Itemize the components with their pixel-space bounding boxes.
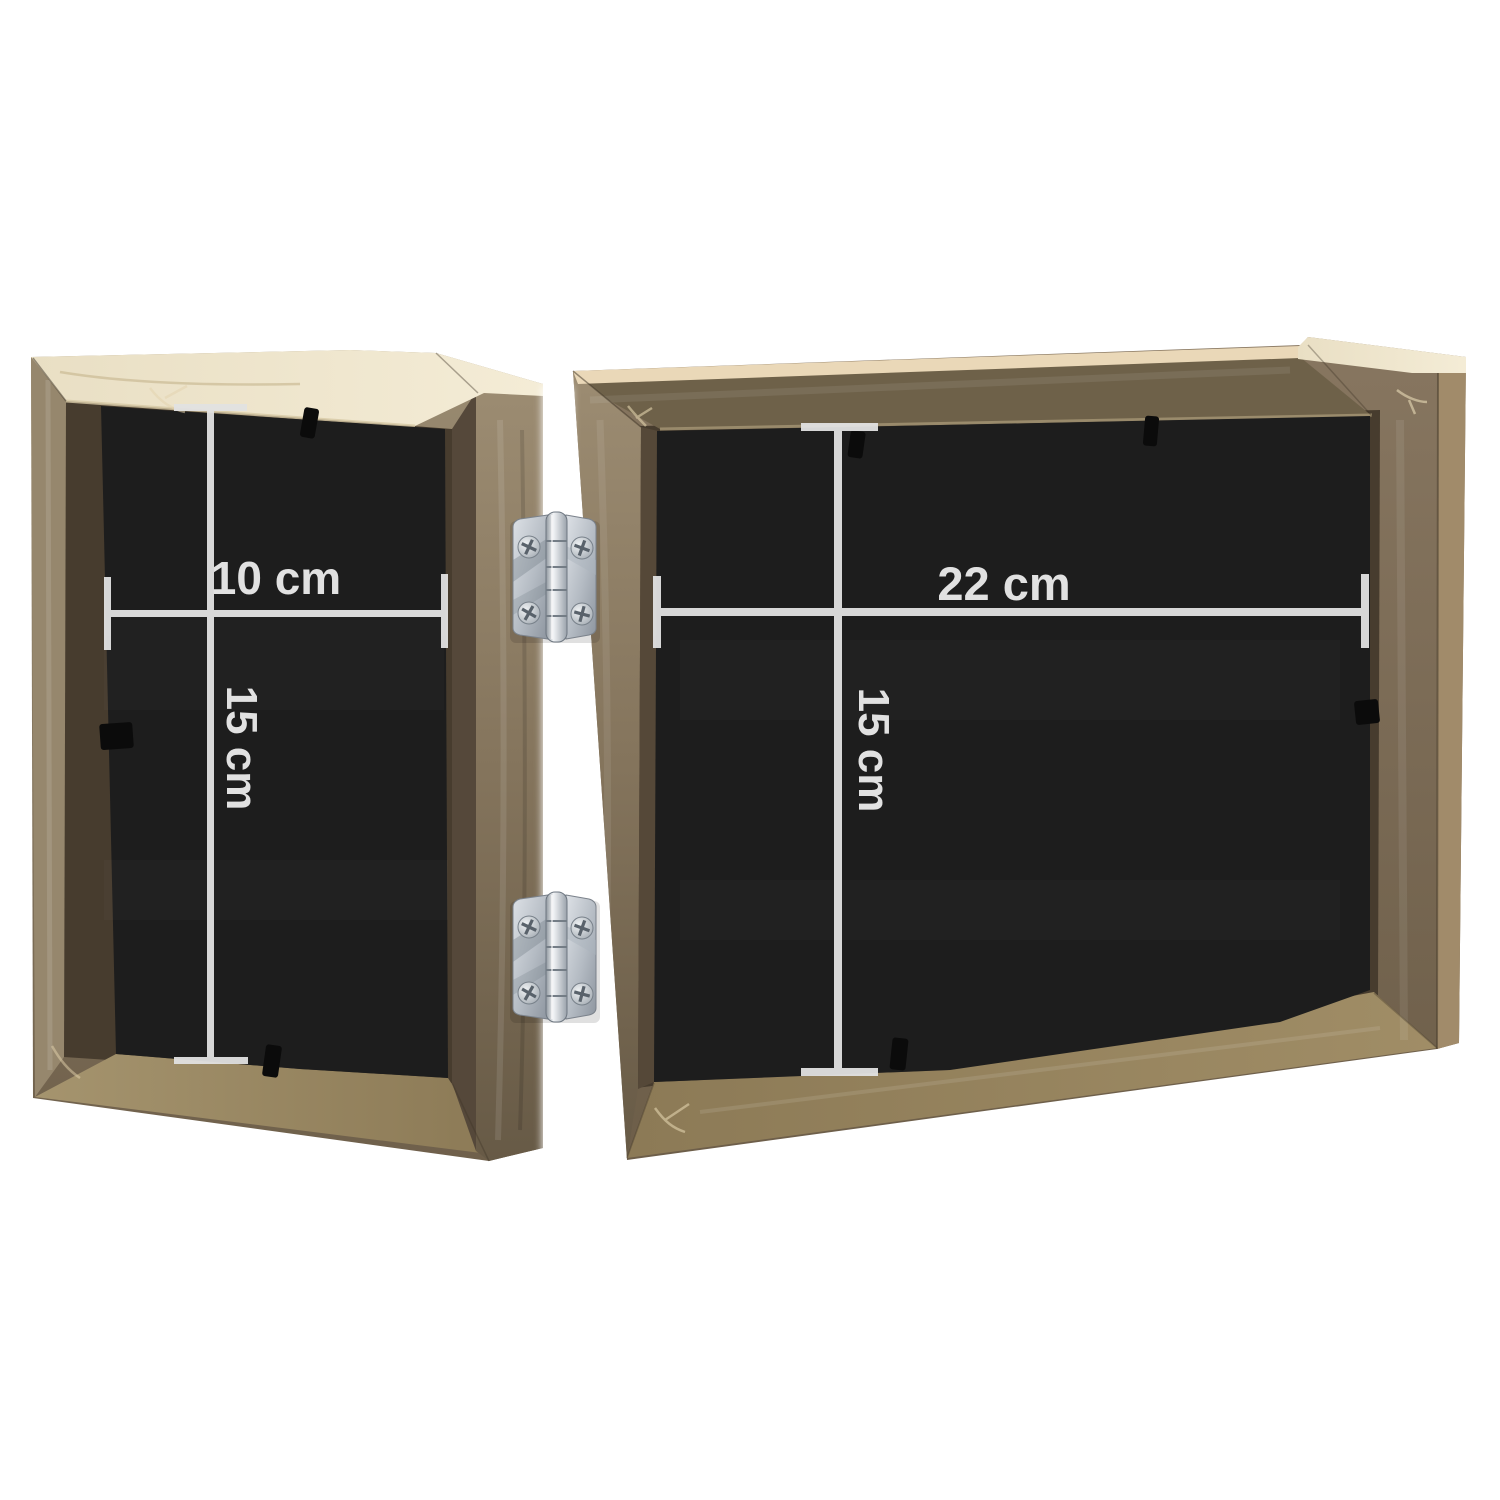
backing-sheen [104,620,444,710]
center-gap-light [542,386,572,1154]
product-image-canvas: 10 cm 15 cm 22 cm 15 cm [0,0,1500,1500]
right-height-end-cap [801,423,878,431]
right-height-end-cap [801,1068,878,1076]
hinge-icon-bottom [510,892,600,1023]
left-height-label: 15 cm [217,686,266,811]
left-width-label: 10 cm [211,552,341,604]
left-width-end-cap [441,574,448,648]
right-frame-side-panel [1437,357,1466,1049]
backing-clip [1143,415,1160,446]
left-frame-backing-board [101,406,448,1078]
right-height-label: 15 cm [849,688,898,813]
left-frame-right-rail [476,384,543,1161]
right-width-end-cap [1361,574,1369,648]
right-height-dimension-line [834,423,842,1075]
left-height-dimension-line [207,404,214,1064]
left-frame-right-rail-wall [452,392,476,1151]
right-width-label: 22 cm [937,557,1070,610]
backing-clip [99,722,134,750]
right-frame [573,337,1466,1160]
wood-grain [1400,420,1404,1040]
backing-clip [1354,699,1380,725]
left-height-end-cap [174,1057,248,1064]
side-panel-seam [1437,360,1438,1049]
left-height-end-cap [174,404,247,411]
backing-sheen [680,640,1340,720]
backing-sheen [104,860,448,920]
backing-sheen [680,880,1340,940]
backing-clip [889,1037,908,1070]
wood-grain [48,380,50,1070]
right-width-end-cap [653,576,661,648]
right-frame-backing-board [654,416,1370,1082]
hinge-icon-top [510,512,600,643]
double-frame-scene: 10 cm 15 cm 22 cm 15 cm [0,0,1500,1500]
left-width-dimension-line [107,610,446,617]
left-width-end-cap [104,577,111,650]
left-frame [31,350,543,1161]
